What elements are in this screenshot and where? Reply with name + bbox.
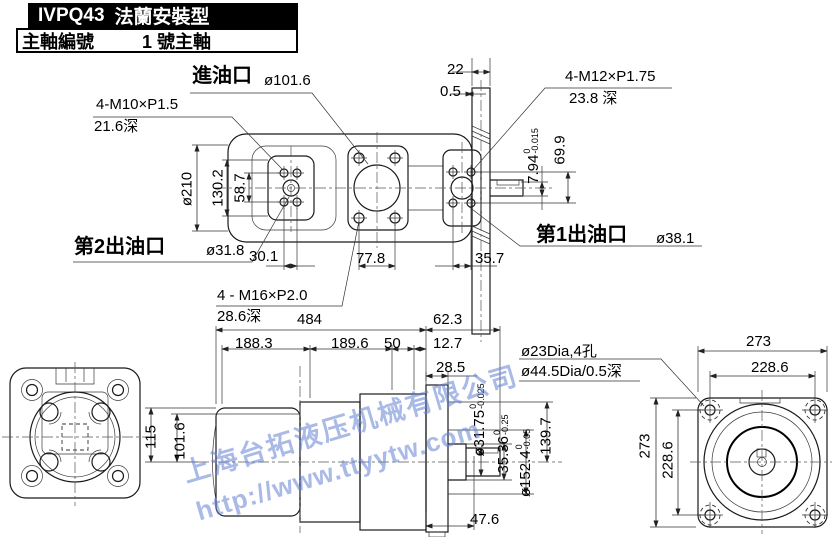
dim-62-3: 62.3	[433, 312, 462, 327]
dim-58-7: 58.7	[233, 173, 248, 202]
dim-pilot-dia-tol: 0-0.05	[515, 429, 531, 450]
dim-50: 50	[384, 336, 401, 351]
dim-key-height: 7.940-0.015	[526, 128, 542, 184]
note-hole-line2: ø44.5Dia/0.5深	[521, 364, 622, 379]
dim-fv-height: 273	[638, 433, 653, 458]
note-m10-depth: 21.6深	[94, 119, 138, 134]
outlet2-label: 第2出油口	[74, 237, 165, 257]
dim-pilot-dia: ø152.40-0.05	[518, 429, 534, 497]
keyway-front	[757, 449, 766, 457]
dim-pilot-dia-value: ø152.4	[517, 450, 534, 497]
note-m10: 4-M10×P1.5	[96, 97, 178, 112]
dim-body-dia-210: ø210	[180, 172, 195, 206]
dim-139-7: 139.7	[539, 417, 554, 455]
outlet1-label: 第1出油口	[536, 225, 627, 245]
dim-key-span-tol: 0-0.25	[493, 414, 509, 435]
inlet-port-label: 進油口	[192, 66, 252, 86]
note-hole-line1: ø23Dia,4孔	[521, 344, 597, 359]
outlet1-dia: ø38.1	[656, 231, 694, 246]
dim-key-span-value: 35.36	[495, 436, 512, 474]
note-m16-depth: 28.6深	[217, 309, 261, 324]
dim-key-height-tol: 0-0.015	[523, 128, 539, 154]
dim-key-span: 35.360-0.25	[496, 414, 512, 473]
dim-130-2: 130.2	[211, 169, 226, 207]
dim-12-7: 12.7	[433, 336, 462, 351]
dim-484: 484	[297, 312, 322, 327]
dim-30-1: 30.1	[249, 249, 278, 264]
leader-lines	[73, 88, 704, 406]
note-m12-depth: 23.8 深	[569, 91, 617, 106]
outlet2-dia: ø31.8	[206, 243, 244, 258]
centerlines	[2, 80, 832, 534]
dim-189-6: 189.6	[331, 336, 369, 351]
dim-fv-bolt-span-h: 228.6	[751, 360, 789, 375]
drawing-sheet: IVPQ43 法蘭安裝型 主軸編號 1 號主軸 上海台拓液压机械有限公司 htt…	[0, 0, 832, 537]
dim-77-8: 77.8	[356, 251, 385, 266]
dim-35-7: 35.7	[475, 251, 504, 266]
dim-flange-thickness-22: 22	[447, 62, 464, 77]
dim-fv-width: 273	[746, 334, 771, 349]
note-m16: 4 - M16×P2.0	[217, 288, 307, 303]
dim-key-height-value: 7.94	[525, 155, 542, 184]
dim-flange-offset-05: 0.5	[440, 84, 461, 99]
dim-69-9: 69.9	[553, 135, 568, 164]
dimensions-top	[192, 58, 576, 270]
front-view	[697, 397, 828, 528]
dim-fv-bolt-span-v: 228.6	[661, 441, 676, 479]
shaft-key	[497, 180, 519, 185]
dim-47-6: 47.6	[470, 512, 499, 527]
dim-188-3: 188.3	[235, 336, 273, 351]
note-m12: 4-M12×P1.75	[565, 69, 655, 84]
dim-115: 115	[144, 425, 159, 449]
inlet-port-dia: ø101.6	[264, 73, 311, 88]
